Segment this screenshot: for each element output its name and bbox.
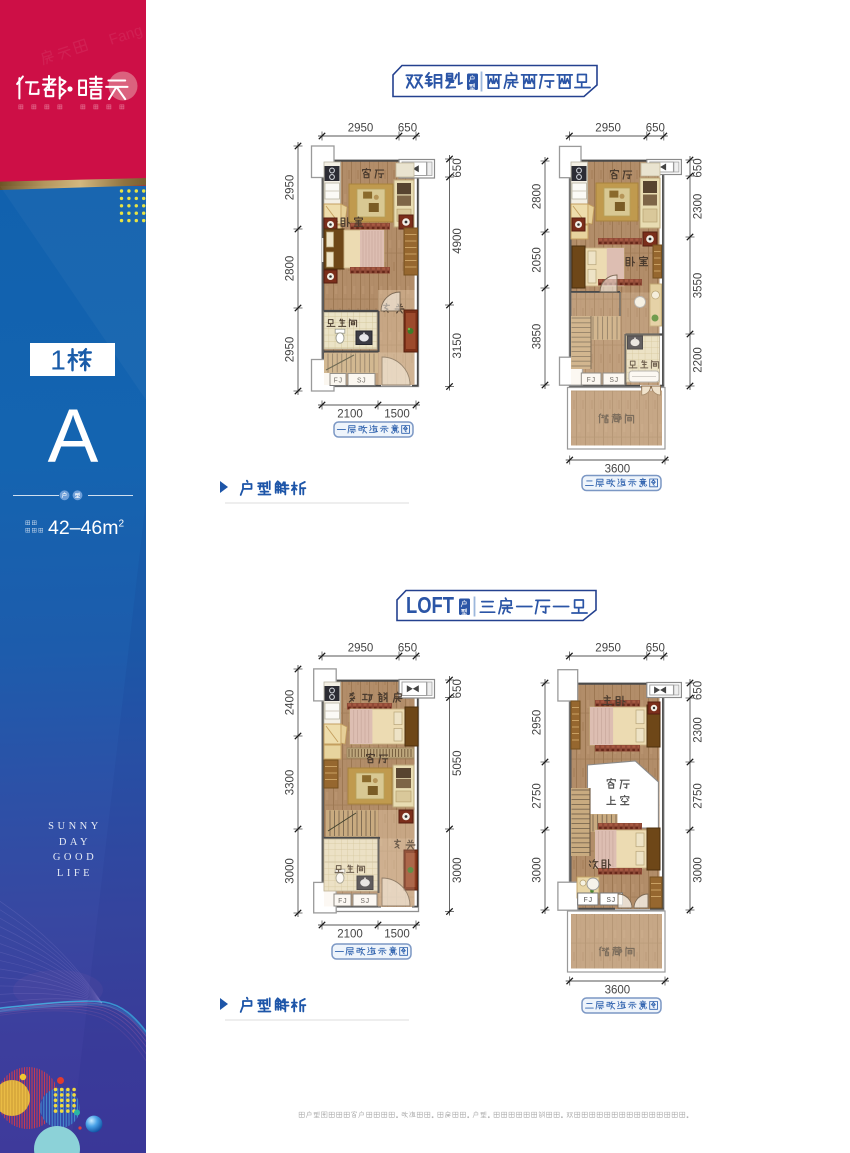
svg-text:SJ: SJ <box>606 897 615 905</box>
svg-text:3000: 3000 <box>285 858 297 884</box>
svg-text:2300: 2300 <box>693 717 705 743</box>
svg-text:650: 650 <box>398 123 417 135</box>
svg-text:2750: 2750 <box>693 783 705 809</box>
svg-text:2200: 2200 <box>693 347 705 373</box>
svg-text:FJ: FJ <box>583 897 592 905</box>
svg-text:3850: 3850 <box>532 324 544 350</box>
svg-text:2800: 2800 <box>532 184 544 210</box>
svg-text:650: 650 <box>693 681 705 700</box>
svg-text:1500: 1500 <box>384 929 410 941</box>
svg-text:2950: 2950 <box>285 337 297 363</box>
svg-text:650: 650 <box>452 158 464 177</box>
svg-text:3600: 3600 <box>605 464 631 476</box>
svg-text:3000: 3000 <box>693 857 705 883</box>
svg-text:2950: 2950 <box>285 175 297 201</box>
svg-text:3000: 3000 <box>452 857 464 883</box>
svg-text:650: 650 <box>452 679 464 698</box>
svg-text:5050: 5050 <box>452 750 464 776</box>
svg-text:650: 650 <box>646 643 665 655</box>
svg-text:2050: 2050 <box>532 247 544 273</box>
svg-text:3300: 3300 <box>285 770 297 796</box>
svg-text:2800: 2800 <box>285 256 297 282</box>
svg-text:2100: 2100 <box>337 409 363 421</box>
svg-text:3000: 3000 <box>532 857 544 883</box>
svg-text:2400: 2400 <box>285 690 297 716</box>
svg-text:3600: 3600 <box>605 985 631 997</box>
svg-text:Fang: Fang <box>107 22 145 49</box>
svg-text:3150: 3150 <box>452 333 464 359</box>
svg-text:2950: 2950 <box>595 643 621 655</box>
svg-text:LOFT: LOFT <box>406 592 454 618</box>
svg-text:2950: 2950 <box>532 710 544 736</box>
svg-text:2100: 2100 <box>337 929 363 941</box>
svg-text:4900: 4900 <box>452 228 464 254</box>
svg-text:650: 650 <box>693 158 705 177</box>
svg-text:3550: 3550 <box>693 273 705 299</box>
svg-text:650: 650 <box>646 123 665 135</box>
svg-text:1: 1 <box>50 345 66 376</box>
svg-text:1500: 1500 <box>384 409 410 421</box>
svg-text:2950: 2950 <box>348 123 374 135</box>
svg-text:650: 650 <box>398 643 417 655</box>
svg-text:2950: 2950 <box>595 123 621 135</box>
svg-text:2750: 2750 <box>532 783 544 809</box>
svg-text:2950: 2950 <box>348 643 374 655</box>
svg-text:2300: 2300 <box>693 194 705 220</box>
